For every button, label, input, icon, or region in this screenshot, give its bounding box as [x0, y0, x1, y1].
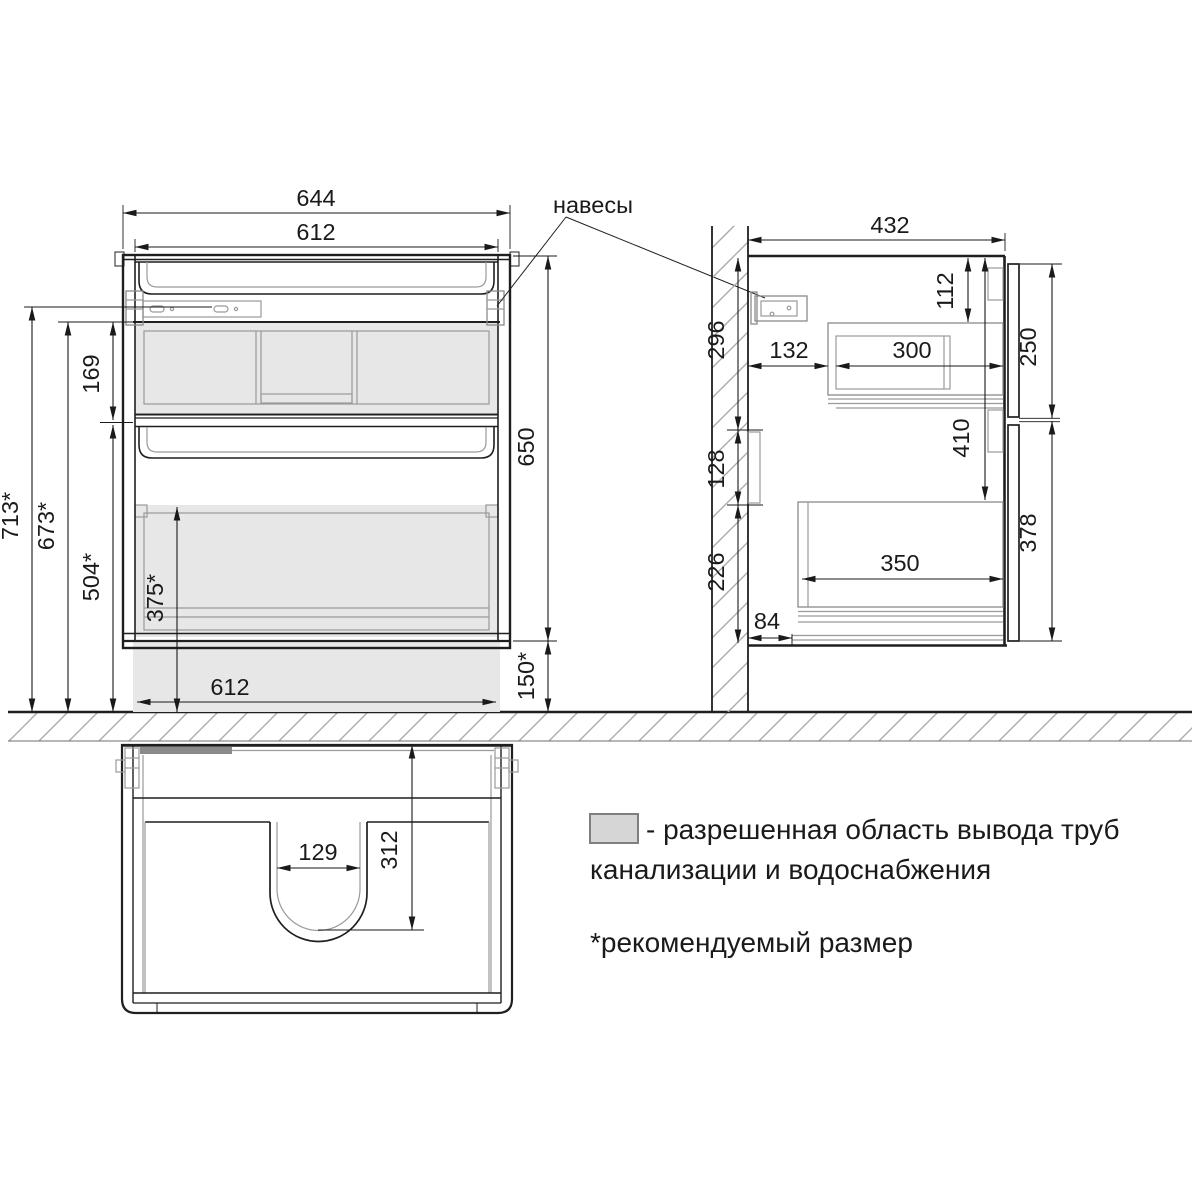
- dim-wall-to-box: 132: [748, 337, 828, 366]
- dim-floor-gap: 150*: [513, 641, 548, 712]
- floor-hatching: [8, 712, 1192, 741]
- side-wall-panel: [748, 432, 760, 503]
- svg-text:378: 378: [1015, 513, 1041, 552]
- technical-drawing-page: навесы 644 612 650 150*: [0, 0, 1200, 1200]
- svg-text:150*: 150*: [513, 652, 539, 700]
- svg-text:644: 644: [296, 185, 335, 211]
- dim-box-depth: 300: [836, 337, 1003, 366]
- legend: - разрешенная область вывода труб канали…: [590, 814, 1119, 958]
- legend-swatch: [590, 814, 638, 843]
- svg-text:84: 84: [754, 608, 780, 634]
- svg-text:250: 250: [1015, 327, 1041, 366]
- svg-text:169: 169: [78, 354, 104, 393]
- dim-front-width-inner: 612: [135, 219, 498, 252]
- hangers-leader-left: [497, 217, 566, 306]
- svg-text:713*: 713*: [0, 492, 23, 540]
- svg-text:296: 296: [703, 320, 729, 359]
- svg-text:432: 432: [870, 212, 909, 238]
- side-view: 432 296 128 226 112 410 132: [703, 212, 1062, 712]
- drawer-divider: [135, 415, 498, 459]
- hanger-bracket-right: [487, 291, 504, 325]
- top-drawer-front: [135, 262, 498, 294]
- dim-lower-box-depth: 350: [802, 550, 1003, 579]
- dim-side-depth: 432: [748, 212, 1005, 251]
- svg-text:132: 132: [769, 337, 808, 363]
- dim-bottom-front-height: 378: [1015, 421, 1062, 641]
- pipe-area-lower: [135, 505, 498, 637]
- legend-line2: канализации и водоснабжения: [590, 854, 991, 885]
- dim-top-to-drawer-box: 112: [932, 258, 968, 322]
- dim-top-front-height: 250: [1015, 264, 1062, 418]
- bottom-view: 129 312: [116, 745, 518, 1013]
- mounting-rail: [140, 747, 232, 754]
- hangers-label: навесы: [553, 192, 633, 218]
- svg-text:410: 410: [948, 418, 974, 457]
- dim-divider-height-recommended: 504*: [78, 423, 133, 713]
- vanity-installation-drawing: навесы 644 612 650 150*: [0, 0, 1200, 1200]
- side-slide-slots: [988, 268, 1003, 452]
- svg-text:612: 612: [296, 219, 335, 245]
- dim-hanger-zone: 169: [78, 322, 113, 420]
- svg-text:300: 300: [892, 337, 931, 363]
- svg-text:673*: 673*: [33, 502, 59, 550]
- legend-line1: - разрешенная область вывода труб: [646, 814, 1119, 845]
- svg-text:312: 312: [376, 830, 402, 869]
- dim-bottom-inset: 84: [748, 608, 792, 638]
- front-view: навесы 644 612 650 150*: [0, 185, 765, 712]
- svg-text:375*: 375*: [142, 574, 168, 622]
- pipe-area-upper: [133, 322, 500, 413]
- svg-text:129: 129: [298, 839, 337, 865]
- svg-text:650: 650: [513, 427, 539, 466]
- dim-front-height: 650: [513, 256, 557, 641]
- legend-recommended-note: *рекомендуемый размер: [590, 927, 913, 958]
- svg-text:350: 350: [880, 550, 919, 576]
- svg-text:612: 612: [210, 674, 249, 700]
- svg-text:128: 128: [703, 449, 729, 488]
- svg-text:112: 112: [932, 272, 958, 309]
- side-hanger-bracket: [751, 292, 807, 324]
- svg-text:226: 226: [703, 552, 729, 591]
- svg-text:504*: 504*: [78, 553, 104, 601]
- drawer-slide-rail: [143, 301, 261, 317]
